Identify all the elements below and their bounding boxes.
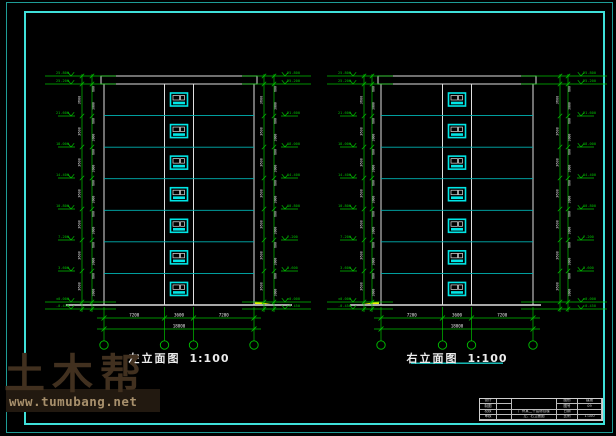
svg-text:3000: 3000 xyxy=(274,102,278,110)
svg-text:600: 600 xyxy=(568,273,572,279)
elevation-view-1: 25.80025.20021.60018.00014.40010.8007.20… xyxy=(327,71,607,364)
svg-text:3600: 3600 xyxy=(260,127,264,136)
svg-text:±0.000: ±0.000 xyxy=(287,297,300,301)
title-block-signature-cell xyxy=(497,415,512,420)
svg-text:3600: 3600 xyxy=(360,127,364,136)
svg-text:7.200: 7.200 xyxy=(583,235,594,239)
svg-text:600: 600 xyxy=(372,242,376,248)
title-block-logo-cell xyxy=(512,399,557,410)
svg-text:3600: 3600 xyxy=(556,96,560,105)
svg-text:±0.000: ±0.000 xyxy=(338,297,351,301)
right-elevation-caption: 右立面图1:100 xyxy=(406,350,507,366)
svg-text:14.400: 14.400 xyxy=(287,173,300,177)
svg-text:-0.450: -0.450 xyxy=(56,304,69,308)
svg-text:3600: 3600 xyxy=(556,282,560,291)
svg-text:18.000: 18.000 xyxy=(583,142,596,146)
svg-text:600: 600 xyxy=(92,180,96,186)
svg-text:600: 600 xyxy=(274,86,278,92)
title-block: 设计 图别 建施 制图 图号 09 校核 广州某二十层综合楼 日期 审核 左、右… xyxy=(479,398,603,421)
svg-text:7200: 7200 xyxy=(129,313,140,318)
svg-text:7200: 7200 xyxy=(407,313,418,318)
svg-text:3000: 3000 xyxy=(274,196,278,204)
svg-text:25.200: 25.200 xyxy=(338,79,351,83)
svg-text:600: 600 xyxy=(372,273,376,279)
svg-text:25.800: 25.800 xyxy=(287,71,300,75)
svg-text:14.400: 14.400 xyxy=(56,173,69,177)
svg-text:3.600: 3.600 xyxy=(583,266,594,270)
elevation-view-0: 25.80025.20021.60018.00014.40010.8007.20… xyxy=(45,71,311,349)
svg-text:3000: 3000 xyxy=(372,227,376,235)
svg-text:10.800: 10.800 xyxy=(287,204,300,208)
svg-text:21.600: 21.600 xyxy=(56,111,69,115)
svg-text:10.800: 10.800 xyxy=(338,204,351,208)
svg-text:3600: 3600 xyxy=(360,189,364,198)
svg-text:25.800: 25.800 xyxy=(583,71,596,75)
svg-text:3000: 3000 xyxy=(372,102,376,110)
svg-text:3600: 3600 xyxy=(78,127,82,136)
svg-text:600: 600 xyxy=(568,149,572,155)
svg-text:3000: 3000 xyxy=(568,102,572,110)
svg-text:-0.450: -0.450 xyxy=(287,304,300,308)
svg-text:3600: 3600 xyxy=(360,220,364,229)
svg-text:600: 600 xyxy=(92,149,96,155)
svg-text:3000: 3000 xyxy=(372,165,376,173)
svg-text:3000: 3000 xyxy=(92,165,96,173)
svg-text:3600: 3600 xyxy=(556,158,560,167)
svg-text:600: 600 xyxy=(568,211,572,217)
svg-text:600: 600 xyxy=(92,86,96,92)
svg-text:3600: 3600 xyxy=(78,158,82,167)
svg-text:21.600: 21.600 xyxy=(287,111,300,115)
right-elevation-scale: 1:100 xyxy=(467,352,507,365)
svg-text:600: 600 xyxy=(568,86,572,92)
svg-text:7200: 7200 xyxy=(219,313,230,318)
svg-text:3000: 3000 xyxy=(92,227,96,235)
svg-text:3600: 3600 xyxy=(78,189,82,198)
svg-text:600: 600 xyxy=(274,149,278,155)
svg-text:600: 600 xyxy=(274,180,278,186)
svg-text:±0.000: ±0.000 xyxy=(56,297,69,301)
svg-text:21.600: 21.600 xyxy=(338,111,351,115)
svg-text:600: 600 xyxy=(568,180,572,186)
svg-text:3000: 3000 xyxy=(372,258,376,266)
svg-text:3000: 3000 xyxy=(372,196,376,204)
svg-text:7.200: 7.200 xyxy=(287,235,298,239)
svg-text:3600: 3600 xyxy=(78,96,82,105)
title-block-label: 比例 xyxy=(557,415,578,420)
title-block-value: 1:100 xyxy=(578,415,602,420)
svg-text:3600: 3600 xyxy=(556,127,560,136)
svg-text:3000: 3000 xyxy=(372,289,376,297)
svg-text:600: 600 xyxy=(372,211,376,217)
svg-text:3000: 3000 xyxy=(92,258,96,266)
svg-text:3000: 3000 xyxy=(372,134,376,142)
svg-text:600: 600 xyxy=(372,86,376,92)
svg-text:3000: 3000 xyxy=(568,134,572,142)
svg-text:14.400: 14.400 xyxy=(583,173,596,177)
svg-text:3000: 3000 xyxy=(568,196,572,204)
left-elevation-scale: 1:100 xyxy=(189,352,229,365)
svg-text:3000: 3000 xyxy=(92,196,96,204)
svg-text:21.600: 21.600 xyxy=(583,111,596,115)
svg-text:10.800: 10.800 xyxy=(583,204,596,208)
cad-drawing-sheet: 25.80025.20021.60018.00014.40010.8007.20… xyxy=(0,0,616,436)
svg-text:7.200: 7.200 xyxy=(58,235,69,239)
svg-text:3.600: 3.600 xyxy=(287,266,298,270)
svg-text:3000: 3000 xyxy=(568,258,572,266)
svg-text:25.200: 25.200 xyxy=(287,79,300,83)
svg-text:±0.000: ±0.000 xyxy=(583,297,596,301)
svg-text:3600: 3600 xyxy=(556,251,560,260)
svg-text:18000: 18000 xyxy=(173,324,186,329)
svg-text:3600: 3600 xyxy=(556,220,560,229)
svg-text:3600: 3600 xyxy=(78,282,82,291)
svg-text:3000: 3000 xyxy=(92,134,96,142)
svg-text:3600: 3600 xyxy=(260,220,264,229)
svg-text:3000: 3000 xyxy=(274,165,278,173)
svg-text:3600: 3600 xyxy=(174,313,185,318)
svg-text:600: 600 xyxy=(568,118,572,124)
svg-text:600: 600 xyxy=(274,211,278,217)
svg-text:25.800: 25.800 xyxy=(56,71,69,75)
title-block-label: 审核 xyxy=(480,415,497,420)
svg-text:3600: 3600 xyxy=(260,282,264,291)
svg-text:3600: 3600 xyxy=(260,158,264,167)
svg-text:600: 600 xyxy=(372,180,376,186)
svg-text:-0.450: -0.450 xyxy=(583,304,596,308)
svg-text:3000: 3000 xyxy=(568,289,572,297)
svg-text:600: 600 xyxy=(568,242,572,248)
svg-text:600: 600 xyxy=(92,242,96,248)
drawing-name: 左、右立面图 xyxy=(512,415,557,420)
svg-text:3600: 3600 xyxy=(360,158,364,167)
svg-text:3000: 3000 xyxy=(274,134,278,142)
svg-text:3.600: 3.600 xyxy=(340,266,351,270)
svg-text:-0.450: -0.450 xyxy=(338,304,351,308)
svg-text:3600: 3600 xyxy=(452,313,463,318)
svg-text:600: 600 xyxy=(274,118,278,124)
svg-text:600: 600 xyxy=(92,273,96,279)
left-elevation-caption: 左立面图1:100 xyxy=(128,350,229,366)
svg-text:600: 600 xyxy=(92,211,96,217)
svg-text:14.400: 14.400 xyxy=(338,173,351,177)
svg-text:3600: 3600 xyxy=(78,251,82,260)
svg-text:3600: 3600 xyxy=(360,282,364,291)
svg-text:3600: 3600 xyxy=(556,189,560,198)
svg-text:600: 600 xyxy=(92,118,96,124)
svg-text:3000: 3000 xyxy=(92,289,96,297)
svg-text:18000: 18000 xyxy=(451,324,464,329)
svg-text:3600: 3600 xyxy=(260,96,264,105)
svg-text:7200: 7200 xyxy=(497,313,508,318)
svg-text:18.000: 18.000 xyxy=(338,142,351,146)
svg-text:3000: 3000 xyxy=(568,227,572,235)
svg-text:600: 600 xyxy=(372,118,376,124)
svg-text:25.200: 25.200 xyxy=(56,79,69,83)
svg-text:3600: 3600 xyxy=(78,220,82,229)
svg-text:3000: 3000 xyxy=(274,289,278,297)
svg-text:600: 600 xyxy=(274,273,278,279)
svg-text:600: 600 xyxy=(274,242,278,248)
svg-text:18.000: 18.000 xyxy=(287,142,300,146)
svg-text:600: 600 xyxy=(372,149,376,155)
svg-text:3.600: 3.600 xyxy=(58,266,69,270)
svg-text:3600: 3600 xyxy=(360,96,364,105)
svg-text:3000: 3000 xyxy=(568,165,572,173)
svg-text:3000: 3000 xyxy=(92,102,96,110)
svg-text:3600: 3600 xyxy=(260,189,264,198)
svg-text:10.800: 10.800 xyxy=(56,204,69,208)
svg-text:3600: 3600 xyxy=(360,251,364,260)
svg-text:25.800: 25.800 xyxy=(338,71,351,75)
left-elevation-name: 左立面图 xyxy=(128,352,180,365)
svg-text:18.000: 18.000 xyxy=(56,142,69,146)
svg-text:25.200: 25.200 xyxy=(583,79,596,83)
elevation-drawings: 25.80025.20021.60018.00014.40010.8007.20… xyxy=(0,0,616,436)
svg-text:3000: 3000 xyxy=(274,227,278,235)
svg-text:3000: 3000 xyxy=(274,258,278,266)
svg-text:3600: 3600 xyxy=(260,251,264,260)
right-elevation-name: 右立面图 xyxy=(406,352,458,365)
svg-text:7.200: 7.200 xyxy=(340,235,351,239)
